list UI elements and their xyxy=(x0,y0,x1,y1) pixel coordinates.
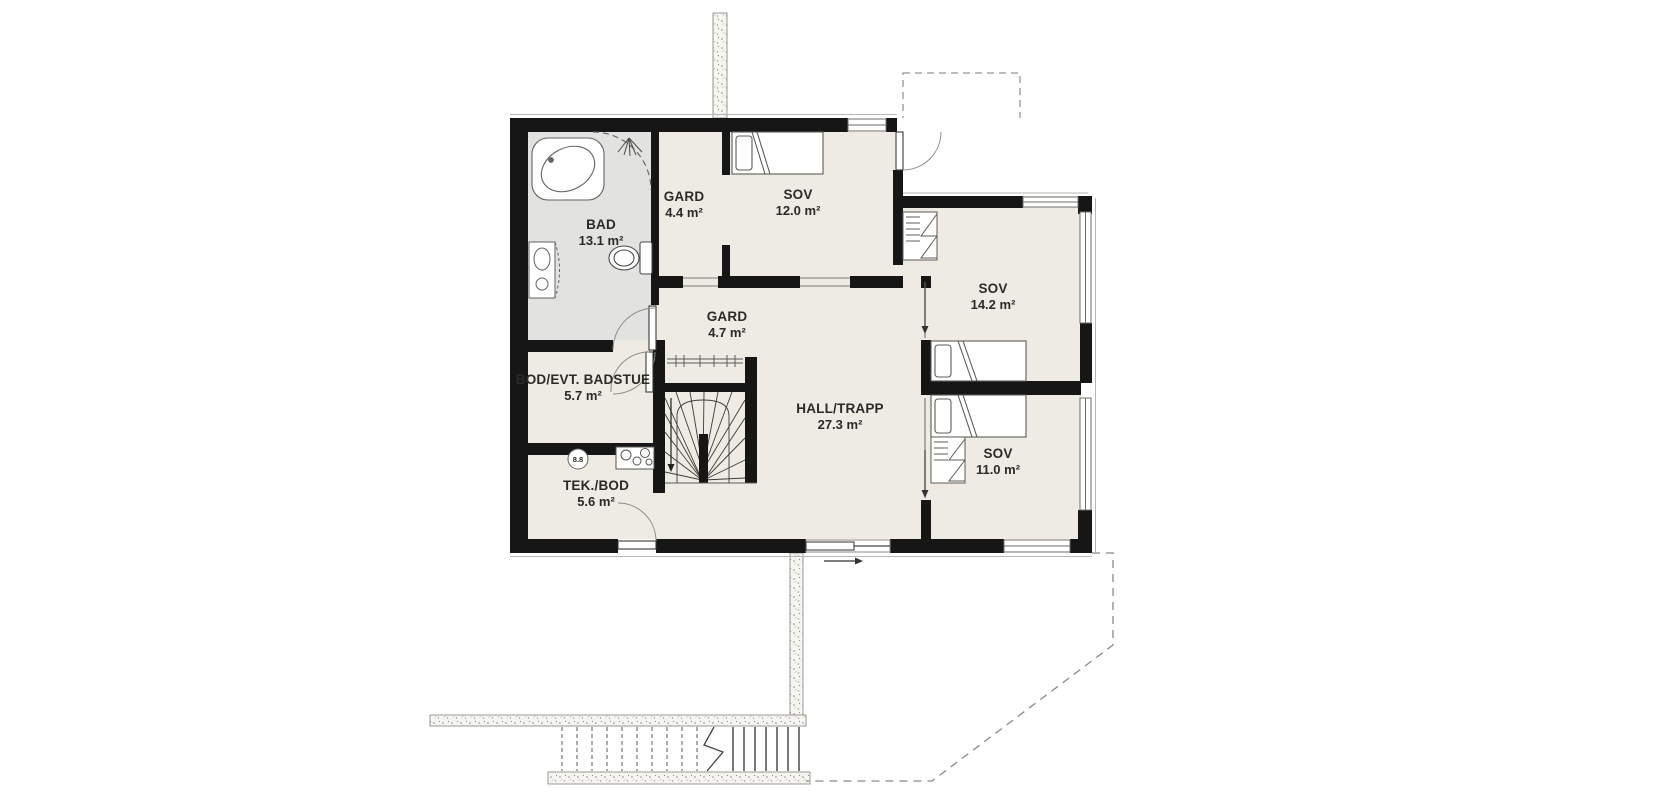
wall-stair-west xyxy=(653,340,665,493)
room-label-bod: BOD/EVT. BADSTUE xyxy=(516,372,650,387)
wall-hall-north-b xyxy=(718,276,800,288)
room-area-sov2: 14.2 m² xyxy=(971,297,1016,312)
opening-gard1 xyxy=(683,276,718,288)
room-area-hall: 27.3 m² xyxy=(818,417,863,432)
wall-north-a xyxy=(510,118,848,132)
wall-entry-jamb xyxy=(893,170,903,265)
wall-stair-east xyxy=(745,357,757,483)
stair-newel xyxy=(699,434,708,483)
porch-floor xyxy=(895,118,1081,196)
wardrobe-sov2-icon xyxy=(903,212,937,260)
window-south-sov3 xyxy=(1004,540,1070,552)
window-north-small xyxy=(848,119,886,131)
terrace-outline xyxy=(806,553,1113,781)
room-label-gard1: GARD xyxy=(664,189,705,204)
room-label-bad: BAD xyxy=(586,217,616,232)
bathtub-icon xyxy=(532,137,604,200)
wall-gard-sov-b xyxy=(722,245,730,276)
wall-south-b xyxy=(656,539,806,553)
room-area-tek: 5.6 m² xyxy=(577,494,615,509)
spot-height-label: 8.8 xyxy=(573,455,583,464)
wall-south-c xyxy=(890,539,1004,553)
room-area-sov1: 12.0 m² xyxy=(776,203,821,218)
bed-sov3-icon xyxy=(931,395,1026,437)
retaining-wall-north xyxy=(713,13,727,118)
wall-hall-sov-a xyxy=(921,340,931,395)
wall-stair-north xyxy=(665,383,745,392)
wall-gard-sov-a xyxy=(722,132,730,175)
room-area-gard2: 4.7 m² xyxy=(708,325,746,340)
arrow-right-icon xyxy=(855,558,863,565)
wall-hall-sov-b xyxy=(921,500,931,553)
exterior-stairs xyxy=(562,727,799,771)
wall-hall-north-d xyxy=(921,276,931,288)
sliding-door-hall xyxy=(806,540,890,565)
room-area-sov3: 11.0 m² xyxy=(976,462,1021,477)
room-area-bad: 13.1 m² xyxy=(579,233,624,248)
floor-plan-canvas: 8.8 BAD 13.1 m² GARD 4.4 m² SOV 12.0 m² … xyxy=(0,0,1670,800)
wall-north-b xyxy=(886,118,897,132)
spot-height-badge: 8.8 xyxy=(568,449,588,469)
bed-sov1-icon xyxy=(732,132,823,174)
window-east-sov2 xyxy=(1080,212,1091,323)
room-label-sov3: SOV xyxy=(983,446,1012,461)
window-east-sov3 xyxy=(1080,398,1091,510)
sink-vanity-icon xyxy=(529,242,560,298)
wall-sov2-sov3 xyxy=(931,381,1081,395)
wardrobe-sov3-icon xyxy=(931,437,965,483)
opening-sov1 xyxy=(800,276,850,288)
room-area-gard1: 4.4 m² xyxy=(665,205,703,220)
wall-north-sov2 xyxy=(903,196,1023,208)
cooktop-icon xyxy=(616,447,654,469)
room-label-tek: TEK./BOD xyxy=(563,478,629,493)
floor-plan-page: 8.8 BAD 13.1 m² GARD 4.4 m² SOV 12.0 m² … xyxy=(0,0,1670,800)
retaining-wall-south xyxy=(430,553,810,784)
room-label-sov2: SOV xyxy=(978,281,1007,296)
break-line xyxy=(704,727,723,771)
wall-hall-north-a xyxy=(651,276,683,288)
wall-east-pier xyxy=(1080,323,1092,383)
wall-south-d xyxy=(1070,539,1092,553)
wall-hall-north-c xyxy=(850,276,903,288)
room-area-bod: 5.7 m² xyxy=(564,388,602,403)
wall-corner-ne xyxy=(1078,196,1092,214)
bed-sov2-icon xyxy=(931,341,1026,381)
wall-west xyxy=(510,118,528,553)
room-label-gard2: GARD xyxy=(707,309,748,324)
wall-south-a xyxy=(510,539,618,553)
wall-bad-south xyxy=(510,340,613,352)
room-label-sov1: SOV xyxy=(783,187,812,202)
room-label-hall: HALL/TRAPP xyxy=(796,401,884,416)
window-ne-corner xyxy=(1023,197,1078,207)
